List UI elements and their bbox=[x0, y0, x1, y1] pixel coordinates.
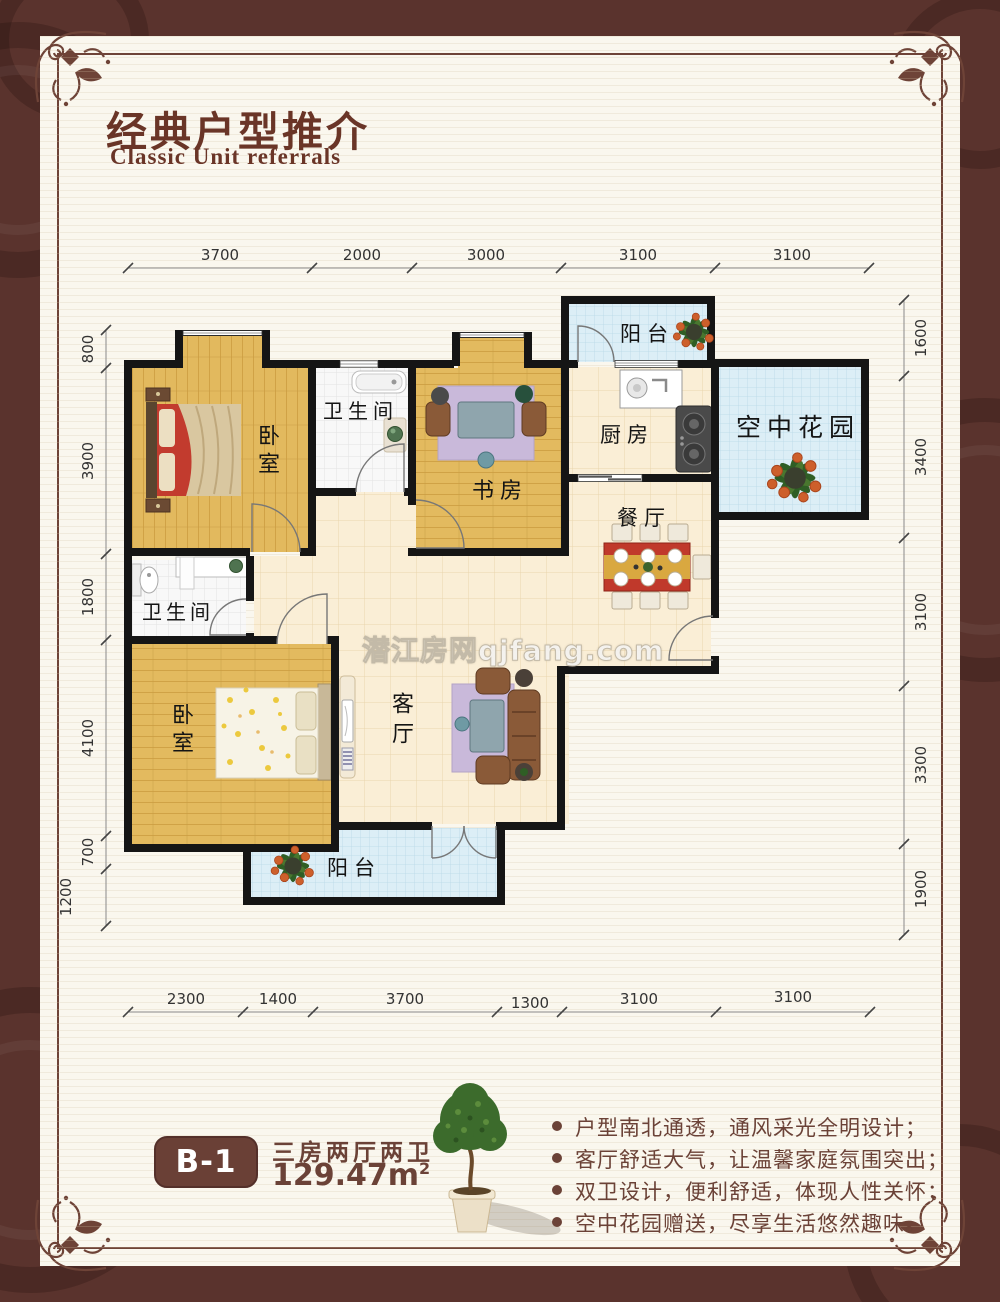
feature-text: 户型南北通透，通风采光全明设计； bbox=[575, 1112, 927, 1142]
dim-right-4: 3300 bbox=[912, 746, 930, 784]
feature-item: 客厅舒适大气，让温馨家庭氛围突出； bbox=[552, 1144, 949, 1176]
page-subtitle: Classic Unit referrals bbox=[110, 144, 341, 170]
dim-top-5: 3100 bbox=[773, 246, 811, 264]
dim-right-1: 1600 bbox=[912, 319, 930, 357]
sofa-set bbox=[452, 668, 540, 784]
dim-bottom-4: 1300 bbox=[511, 994, 549, 1012]
dim-right-5: 1900 bbox=[912, 870, 930, 908]
study-desk bbox=[426, 385, 546, 468]
room-label-bedroom2: 卧室 bbox=[164, 703, 196, 759]
room-label-kitchen: 厨房 bbox=[600, 419, 654, 449]
dim-bottom-2: 1400 bbox=[259, 990, 297, 1008]
bullet-icon bbox=[552, 1217, 562, 1227]
bullet-icon bbox=[552, 1121, 562, 1131]
bathtub bbox=[352, 371, 406, 393]
feature-item: 双卫设计，便利舒适，体现人性关怀； bbox=[552, 1176, 949, 1208]
tv-cabinet bbox=[340, 676, 355, 778]
dim-left-5: 700 bbox=[79, 838, 97, 867]
feature-list: 户型南北通透，通风采光全明设计； 客厅舒适大气，让温馨家庭氛围突出； 双卫设计，… bbox=[552, 1112, 949, 1240]
dim-bottom-3: 3700 bbox=[386, 990, 424, 1008]
bullet-icon bbox=[552, 1185, 562, 1195]
unit-area-text: 129.47m2 bbox=[272, 1158, 430, 1193]
sliding-door bbox=[578, 475, 642, 482]
dim-left-4: 4100 bbox=[79, 719, 97, 757]
area-value: 129.47m bbox=[272, 1158, 419, 1193]
feature-item: 空中花园赠送，尽享生活悠然趣味。 bbox=[552, 1208, 949, 1240]
room-label-study: 书房 bbox=[472, 473, 528, 505]
area-exponent: 2 bbox=[419, 1159, 430, 1178]
room-label-balcony-bottom: 阳台 bbox=[327, 852, 381, 882]
dim-bottom-5: 3100 bbox=[620, 990, 658, 1008]
potted-tree bbox=[433, 1083, 563, 1242]
poster-page: 经典户型推介 Classic Unit referrals 卧室 卫生间 书房 … bbox=[0, 0, 1000, 1302]
kitchen-sink bbox=[620, 370, 682, 408]
room-label-sky-garden: 空中花园 bbox=[736, 408, 860, 444]
feature-text: 双卫设计，便利舒适，体现人性关怀； bbox=[575, 1176, 949, 1206]
dim-left-2: 3900 bbox=[79, 442, 97, 480]
dim-right-3: 3100 bbox=[912, 593, 930, 631]
feature-text: 客厅舒适大气，让温馨家庭氛围突出； bbox=[575, 1144, 949, 1174]
dim-top-1: 3700 bbox=[201, 246, 239, 264]
room-label-dining: 餐厅 bbox=[617, 502, 671, 532]
room-label-balcony-top: 阳台 bbox=[620, 318, 674, 348]
dim-left-1: 800 bbox=[79, 335, 97, 364]
room-label-living: 客厅 bbox=[384, 692, 416, 752]
dim-top-4: 3100 bbox=[619, 246, 657, 264]
unit-code-badge: B-1 bbox=[154, 1136, 258, 1188]
bed-double bbox=[146, 388, 241, 512]
dim-bottom-6: 3100 bbox=[774, 988, 812, 1006]
dim-top-3: 3000 bbox=[467, 246, 505, 264]
slider-window bbox=[615, 361, 678, 368]
toilet bbox=[132, 564, 158, 596]
feature-text: 空中花园赠送，尽享生活悠然趣味。 bbox=[575, 1208, 927, 1238]
dim-left-3: 1800 bbox=[79, 578, 97, 616]
room-label-bath2: 卫生间 bbox=[142, 596, 214, 625]
bed-double bbox=[216, 684, 331, 780]
dim-bottom-1: 2300 bbox=[167, 990, 205, 1008]
dim-top-2: 2000 bbox=[343, 246, 381, 264]
feature-item: 户型南北通透，通风采光全明设计； bbox=[552, 1112, 949, 1144]
watermark: 潜江房网qjfang.com bbox=[362, 629, 664, 669]
bullet-icon bbox=[552, 1153, 562, 1163]
dim-right-2: 3400 bbox=[912, 438, 930, 476]
dim-left-6: 1200 bbox=[57, 878, 75, 916]
room-label-bath1: 卫生间 bbox=[323, 395, 398, 424]
room-label-bedroom1: 卧室 bbox=[250, 424, 282, 480]
stove bbox=[676, 406, 712, 472]
